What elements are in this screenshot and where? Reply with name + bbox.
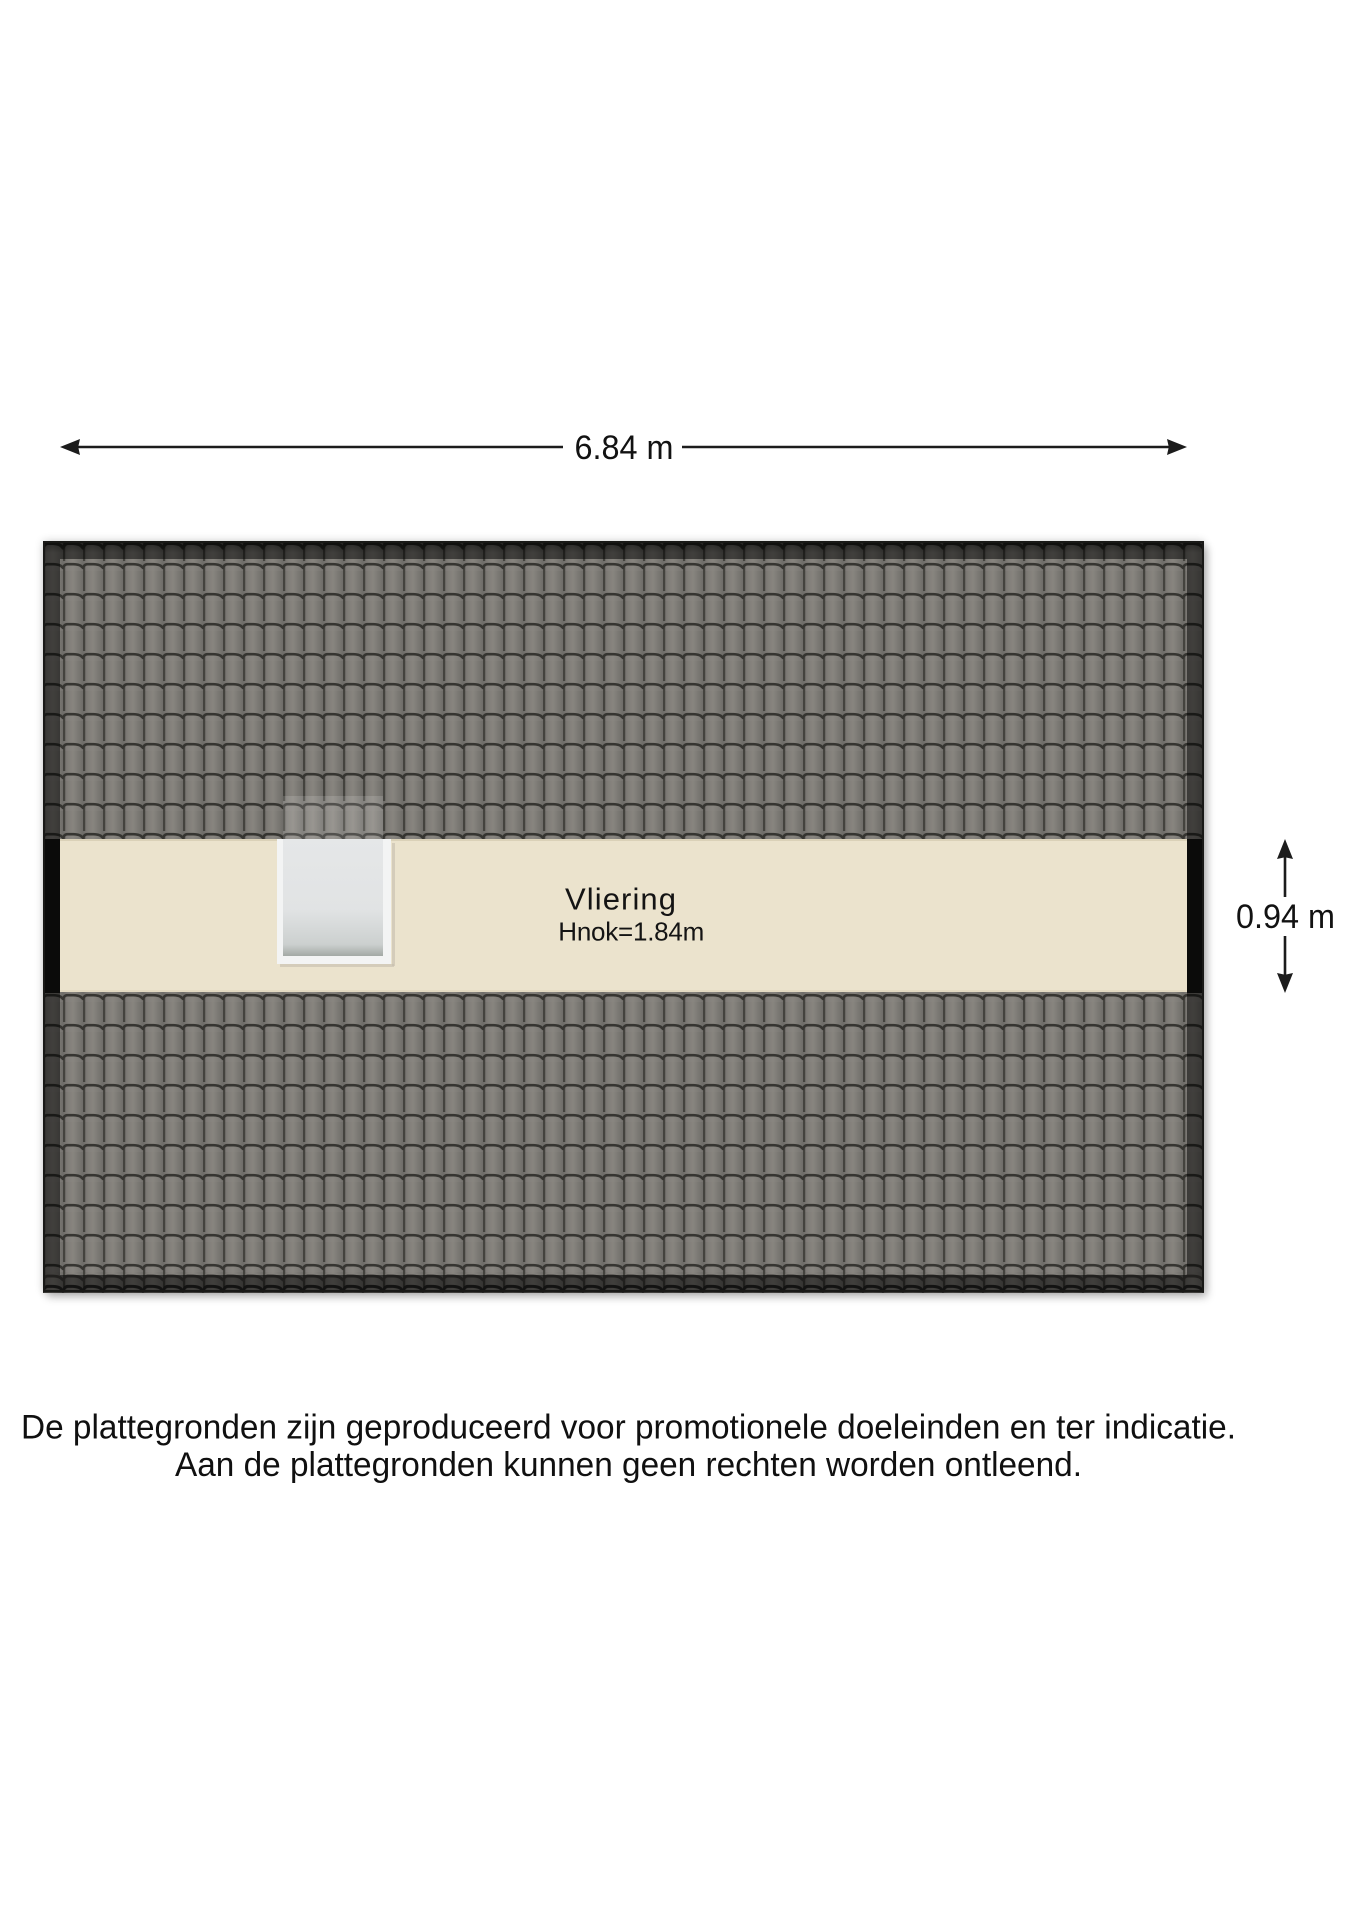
svg-text:0.94 m: 0.94 m	[1236, 898, 1335, 936]
svg-text:Vliering: Vliering	[565, 882, 676, 917]
svg-text:6.84 m: 6.84 m	[575, 429, 674, 467]
svg-text:Aan de plattegronden kunnen ge: Aan de plattegronden kunnen geen rechten…	[175, 1446, 1082, 1484]
svg-text:Hnok=1.84m: Hnok=1.84m	[558, 917, 704, 947]
svg-text:De plattegronden zijn geproduc: De plattegronden zijn geproduceerd voor …	[21, 1409, 1236, 1447]
